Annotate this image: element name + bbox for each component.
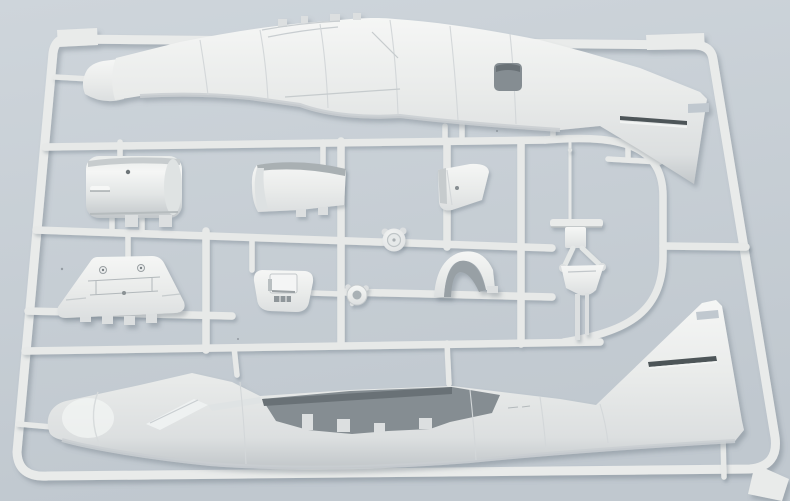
nose-highlight: [62, 398, 114, 438]
floor-grid: [274, 296, 291, 302]
strut-crossbar: [550, 219, 603, 227]
gate-lower-nose: [18, 424, 52, 427]
deck-panel-tab-1: [296, 209, 306, 217]
floor-box-side: [268, 279, 272, 291]
frame-tab-top-left: [57, 28, 98, 47]
photo-of-model-sprue: [0, 0, 790, 501]
gate-floor-right: [312, 293, 340, 294]
cowling-lug-2: [159, 215, 172, 227]
upper-fin-notch: [688, 103, 709, 113]
runner-row-2-right: [663, 246, 746, 247]
strut-prong-2: [585, 293, 589, 335]
floor-box-shadow: [272, 291, 295, 292]
frame-joint-top-right: [646, 33, 705, 50]
deck-panel-tab-2: [318, 207, 328, 215]
rod-tip: [568, 148, 572, 152]
cowling-lug-1: [125, 215, 138, 227]
cowling-latch: [90, 186, 110, 191]
access-panel-hole: [455, 186, 459, 190]
engine-cowling-part: [86, 156, 182, 227]
gate-fin-stub: [608, 159, 660, 162]
disc-center: [392, 238, 395, 241]
sprue-photo: [0, 0, 790, 501]
ring-hole: [353, 291, 362, 300]
gate-spine-2: [447, 343, 449, 384]
gate-spine-1: [234, 347, 237, 375]
cowling-end-shading: [164, 159, 182, 215]
strut-box: [565, 227, 586, 248]
cowling-hole: [126, 170, 130, 174]
saddle-foot: [487, 286, 498, 293]
strut-prong-1: [575, 294, 580, 340]
cockpit-floor-part: [254, 270, 313, 312]
